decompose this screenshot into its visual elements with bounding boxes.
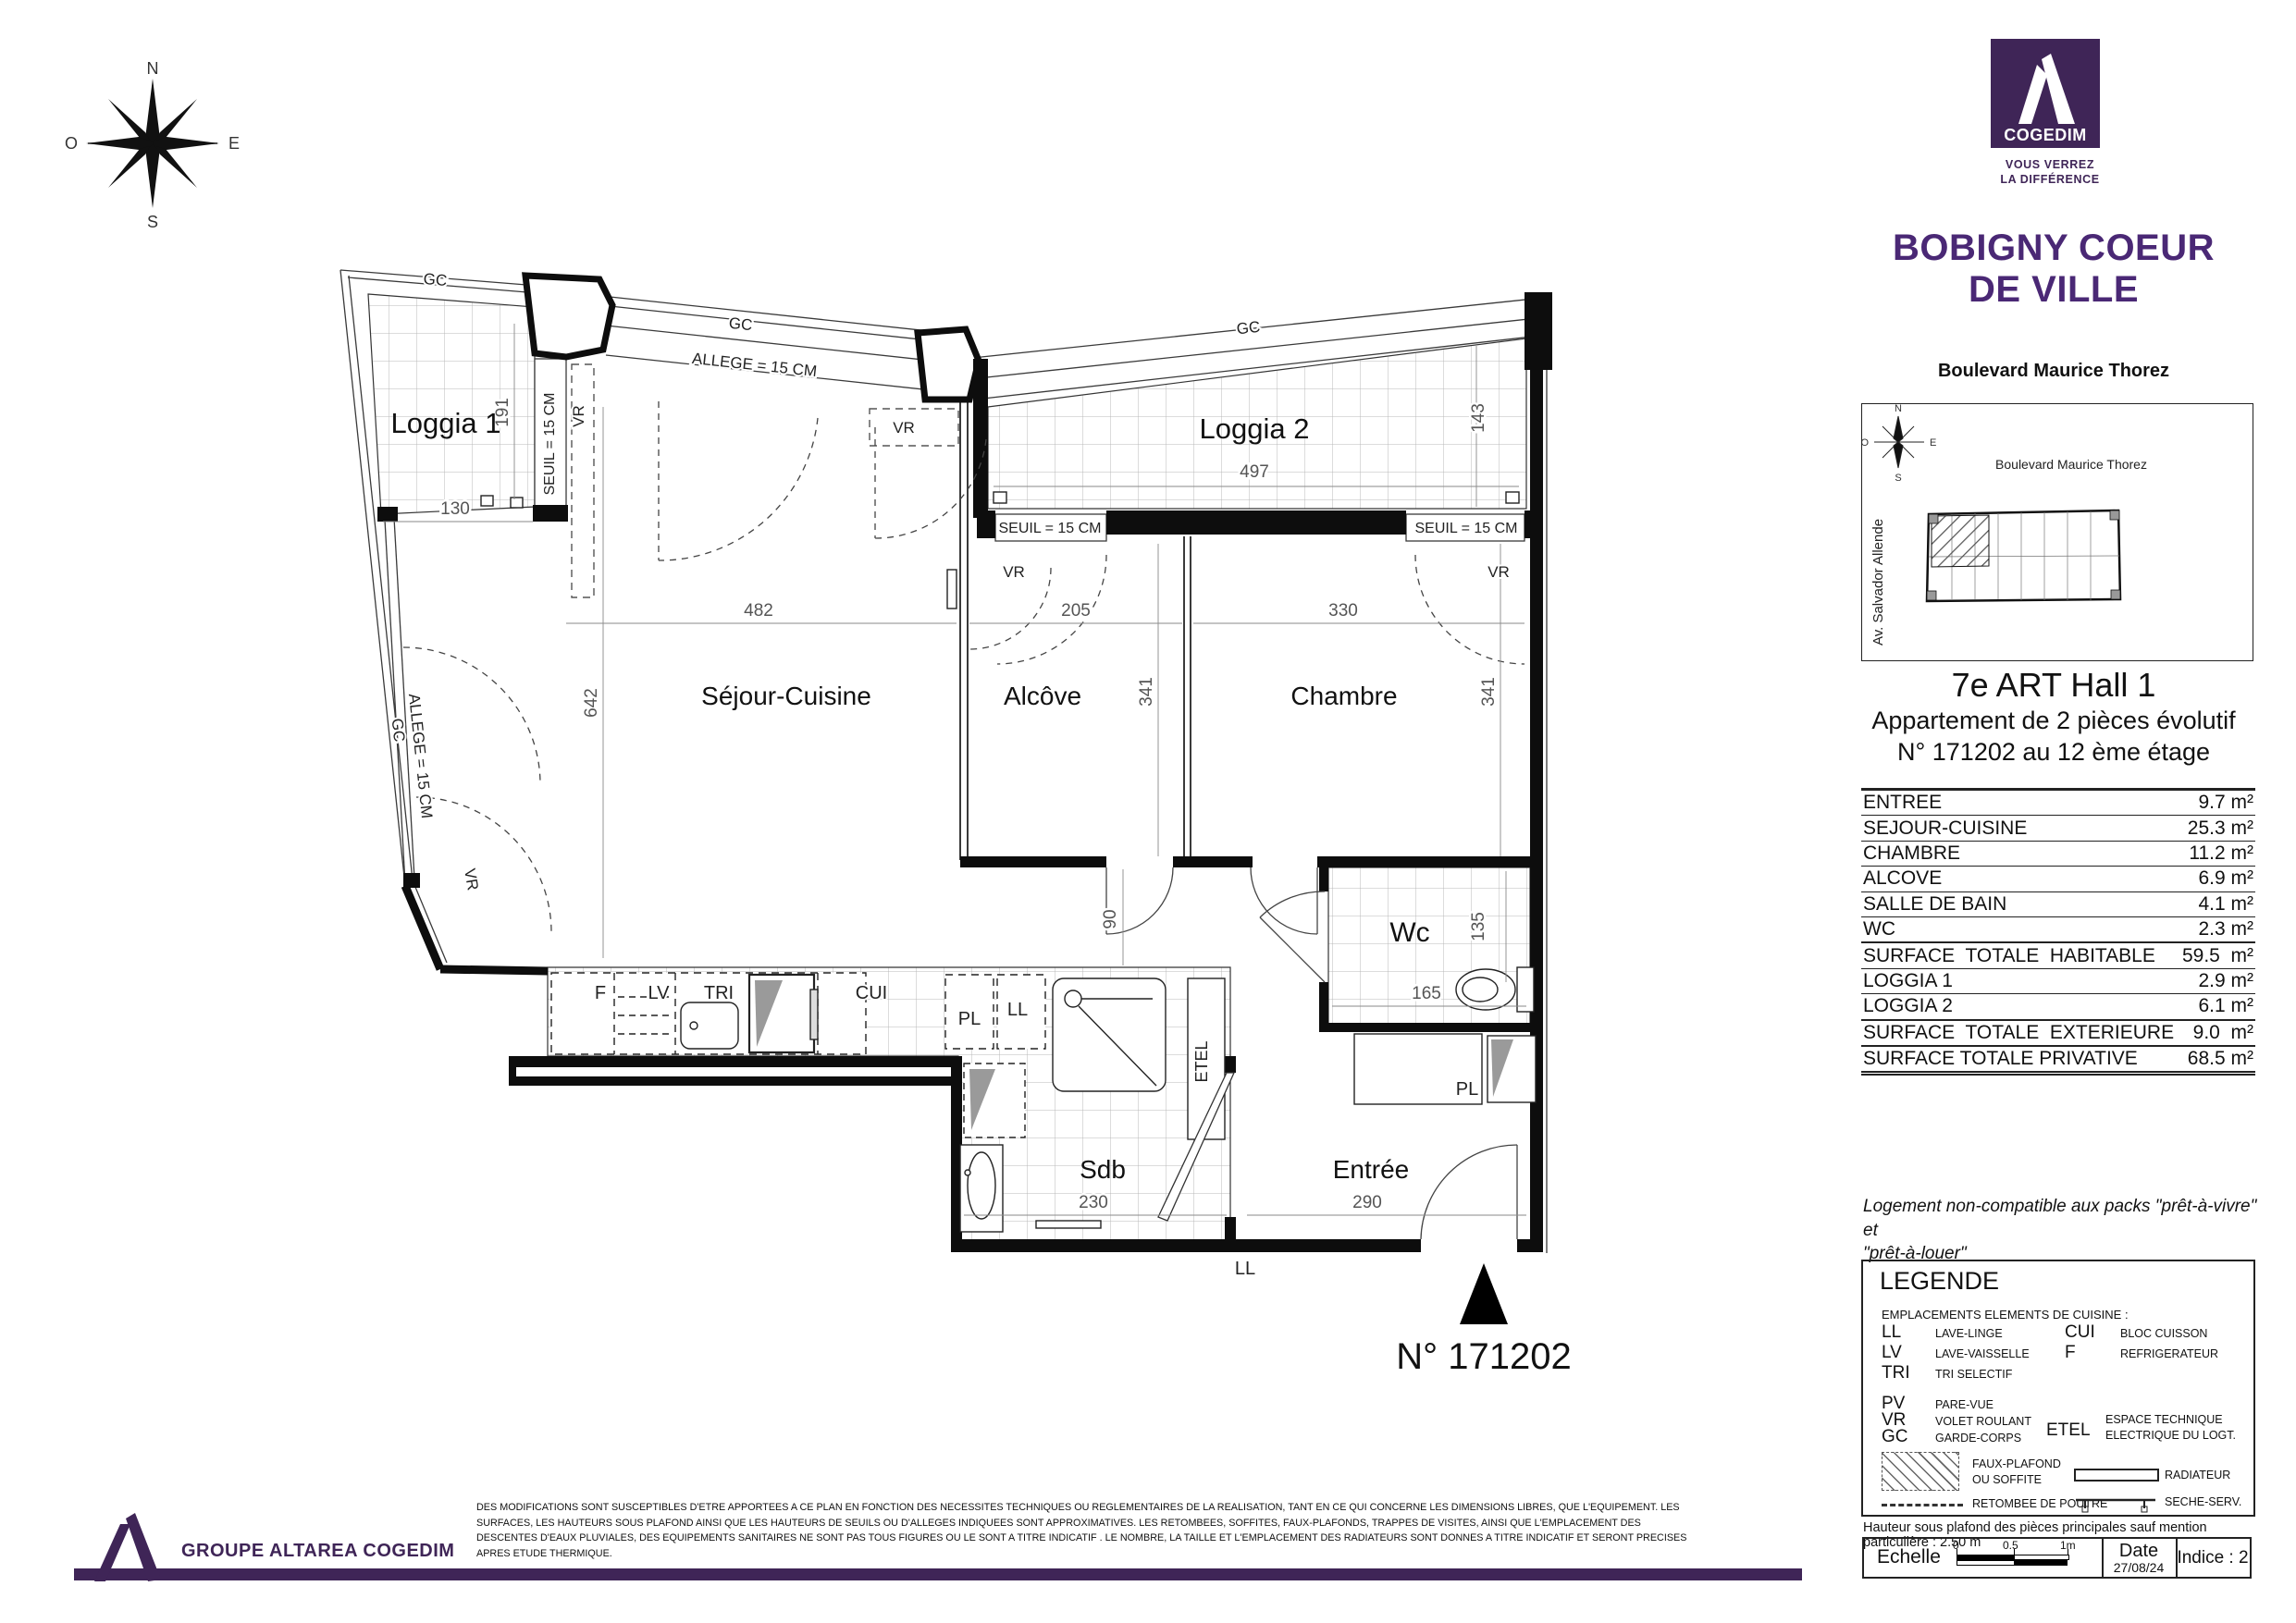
legend-abbr-tri: TRI: [1882, 1363, 1910, 1383]
table-row: ENTREE9.7 m²: [1861, 791, 2255, 816]
legend-label-faux2: OU SOFFITE: [1972, 1473, 2042, 1486]
legend-abbr-gc: GC: [1882, 1427, 1908, 1447]
room-loggia2: Loggia 2: [1200, 412, 1310, 445]
ll-label: LL: [1235, 1259, 1255, 1279]
row-value: 2.9 m²: [2198, 970, 2253, 992]
room-wc: Wc: [1389, 917, 1429, 948]
project-address: Boulevard Maurice Thorez: [1854, 361, 2253, 382]
seche-serviette-icon: [2074, 1494, 2157, 1518]
row-label: LOGGIA 2: [1863, 995, 1953, 1017]
compass-e: E: [228, 134, 240, 153]
date-label: Date: [2102, 1541, 2176, 1562]
kitchen-tri-label: TRI: [704, 983, 734, 1003]
legend-abbr-etel: ETEL: [2046, 1420, 2091, 1441]
seuil-label: SEUIL = 15 CM: [1414, 521, 1517, 536]
unit-location: N° 171202 au 12 ème étage: [1854, 738, 2253, 767]
radiateur-swatch-icon: [2074, 1469, 2159, 1482]
gc-label: GC: [728, 314, 753, 335]
project-title-line2: DE VILLE: [1854, 269, 2253, 311]
compatibility-notice: Logement non-compatible aux packs "prêt-…: [1863, 1195, 2261, 1266]
room-entree: Entrée: [1333, 1155, 1410, 1184]
table-row-total: SURFACE TOTALE PRIVATIVE68.5 m²: [1861, 1046, 2255, 1076]
row-label: SURFACE TOTALE HABITABLE: [1863, 945, 2155, 967]
title-block: Echelle 0 0.5 1m Date 27/08/24 Indice : …: [1862, 1537, 2252, 1579]
dim-wc-h: 135: [1469, 912, 1488, 941]
pl-label: PL: [1456, 1079, 1478, 1100]
legend-abbr-lv: LV: [1882, 1343, 1902, 1363]
altarea-logo-icon: [85, 1511, 178, 1588]
table-row-total: SURFACE TOTALE EXTERIEURE9.0 m²: [1861, 1020, 2255, 1046]
row-label: SEJOUR-CUISINE: [1863, 818, 2027, 840]
table-row: ALCOVE6.9 m²: [1861, 867, 2255, 891]
legend-title: LEGENDE: [1880, 1267, 1999, 1296]
vr-label: VR: [1487, 563, 1510, 581]
ll-label: LL: [1007, 1000, 1028, 1020]
dim-sdb-w: 230: [1079, 1193, 1108, 1212]
table-row: WC2.3 m²: [1861, 917, 2255, 942]
entrance-arrow-icon: [1460, 1263, 1508, 1324]
compass-s: S: [147, 213, 158, 231]
indice-value: Indice : 2: [2176, 1548, 2250, 1568]
legend-label-gc: GARDE-CORPS: [1935, 1432, 2021, 1445]
vr-label: VR: [570, 405, 587, 427]
legend-label-faux1: FAUX-PLAFOND: [1972, 1457, 2061, 1470]
retombee-swatch-icon: [1882, 1504, 1963, 1506]
row-value: 6.9 m²: [2198, 867, 2253, 890]
logo-tagline: VOUS VERREZ LA DIFFÉRENCE: [1976, 157, 2124, 188]
table-row: SALLE DE BAIN4.1 m²: [1861, 892, 2255, 917]
etel-label: ETEL: [1192, 1040, 1211, 1082]
row-value: 2.3 m²: [2198, 918, 2253, 941]
legend-label-tri: TRI SELECTIF: [1935, 1368, 2012, 1381]
vr-label: VR: [461, 867, 482, 892]
room-loggia1: Loggia 1: [391, 407, 501, 439]
legend-label-etel1: ESPACE TECHNIQUE: [2105, 1413, 2223, 1426]
entrance-marker: N° 171202: [1396, 1263, 1571, 1377]
logo-wordmark: COGEDIM: [2004, 126, 2087, 144]
legend-label-f: REFRIGERATEUR: [2120, 1347, 2218, 1360]
dim-alcove-w: 205: [1061, 601, 1091, 621]
compass-o: O: [65, 134, 78, 153]
vr-label: VR: [893, 419, 915, 436]
row-value: 6.1 m²: [2198, 995, 2253, 1017]
legend-abbr-f: F: [2065, 1343, 2076, 1363]
dim-loggia2-w: 497: [1240, 462, 1269, 482]
legend-kitchen-header: EMPLACEMENTS ELEMENTS DE CUISINE :: [1882, 1308, 2129, 1322]
legend-label-ll: LAVE-LINGE: [1935, 1327, 2003, 1340]
project-title: BOBIGNY COEUR DE VILLE: [1854, 227, 2253, 311]
row-value: 59.5 m²: [2182, 945, 2253, 967]
table-row: CHAMBRE11.2 m²: [1861, 842, 2255, 867]
legend-label-etel2: ELECTRIQUE DU LOGT.: [2105, 1429, 2236, 1442]
scale-bar: [2014, 1560, 2068, 1566]
room-chambre: Chambre: [1290, 682, 1397, 710]
kitchen-f-label: F: [595, 983, 606, 1003]
scale-label: Echelle: [1877, 1546, 1941, 1568]
unit-number: N° 171202: [1396, 1336, 1571, 1377]
table-row: LOGGIA 26.1 m²: [1861, 994, 2255, 1019]
cogedim-logo: COGEDIM: [1991, 39, 2102, 152]
row-value: 25.3 m²: [2188, 818, 2253, 840]
dim-wc-w: 165: [1412, 984, 1441, 1003]
row-label: WC: [1863, 918, 1895, 941]
legend-label-vr: VOLET ROULANT: [1935, 1415, 2031, 1428]
date-value: 27/08/24: [2102, 1560, 2176, 1575]
dim-passage: 90: [1101, 909, 1120, 928]
legend-abbr-ll: LL: [1882, 1322, 1901, 1343]
dim-entree-w: 290: [1352, 1193, 1382, 1212]
row-label: SALLE DE BAIN: [1863, 893, 2006, 916]
disclaimer-line: DESCENTES D'EAUX PLUVIALES, DES EQUIPEME…: [476, 1531, 1813, 1546]
seuil-label: SEUIL = 15 CM: [998, 521, 1101, 536]
project-title-line1: BOBIGNY COEUR: [1854, 227, 2253, 269]
table-row: SEJOUR-CUISINE25.3 m²: [1861, 816, 2255, 841]
footer-disclaimer: DES MODIFICATIONS SONT SUSCEPTIBLES D'ET…: [476, 1500, 1813, 1562]
legend-label-seche: SECHE-SERV.: [2165, 1495, 2241, 1508]
footer-company: GROUPE ALTAREA COGEDIM: [181, 1541, 454, 1562]
dim-loggia1-w: 130: [440, 499, 470, 519]
legend-box: LEGENDE EMPLACEMENTS ELEMENTS DE CUISINE…: [1861, 1260, 2255, 1517]
gc-label: GC: [423, 270, 448, 289]
room-sejour: Séjour-Cuisine: [701, 682, 871, 710]
vr-label: VR: [1003, 563, 1025, 581]
seuil-label: SEUIL = 15 CM: [542, 392, 558, 495]
room-alcove: Alcôve: [1004, 682, 1081, 710]
kitchen-cui-label: CUI: [856, 983, 887, 1003]
legend-label-pv: PARE-VUE: [1935, 1398, 1994, 1411]
scale-bar: [1957, 1560, 2016, 1566]
logo-tagline-line2: LA DIFFÉRENCE: [1976, 172, 2124, 187]
compass-rose-icon: N S E O: [65, 59, 240, 231]
notice-line1: Logement non-compatible aux packs "prêt-…: [1863, 1195, 2261, 1242]
unit-description: Appartement de 2 pièces évolutif: [1854, 707, 2253, 735]
row-label: LOGGIA 1: [1863, 970, 1953, 992]
dim-sejour-h: 642: [582, 688, 601, 718]
row-label: CHAMBRE: [1863, 842, 1960, 865]
dim-sejour-w: 482: [744, 601, 773, 621]
surfaces-table: ENTREE9.7 m² SEJOUR-CUISINE25.3 m² CHAMB…: [1861, 788, 2255, 1076]
row-label: SURFACE TOTALE EXTERIEURE: [1863, 1022, 2174, 1044]
legend-label-radiateur: RADIATEUR: [2165, 1469, 2230, 1482]
row-value: 4.1 m²: [2198, 893, 2253, 916]
dim-chambre-w: 330: [1328, 601, 1358, 621]
map-avenue-label: Av. Salvador Allende: [1870, 627, 2028, 646]
dim-chambre-h: 341: [1479, 677, 1499, 707]
gc-label: GC: [389, 718, 409, 743]
disclaimer-line: APRES ETUDE THERMIQUE.: [476, 1546, 1813, 1562]
footer-bar: [74, 1568, 1802, 1580]
table-row-total: SURFACE TOTALE HABITABLE59.5 m²: [1861, 942, 2255, 968]
allege-label: ALLEGE = 15 CM: [691, 350, 818, 380]
row-value: 11.2 m²: [2189, 842, 2253, 865]
row-value: 9.7 m²: [2198, 792, 2253, 814]
row-label: ALCOVE: [1863, 867, 1942, 890]
logo-tagline-line1: VOUS VERREZ: [1976, 157, 2124, 172]
site-map-box: [1861, 403, 2253, 661]
legend-abbr-cui: CUI: [2065, 1322, 2095, 1343]
map-street-label: Boulevard Maurice Thorez: [1965, 457, 2178, 472]
room-sdb: Sdb: [1080, 1155, 1126, 1184]
legend-label-lv: LAVE-VAISSELLE: [1935, 1347, 2030, 1360]
disclaimer-line: DES MODIFICATIONS SONT SUSCEPTIBLES D'ET…: [476, 1500, 1813, 1516]
pl-label: PL: [958, 1009, 981, 1029]
disclaimer-line: SURFACES, LES HAUTEURS SOUS PLAFOND AINS…: [476, 1516, 1813, 1531]
row-label: SURFACE TOTALE PRIVATIVE: [1863, 1048, 2138, 1070]
legend-label-cui: BLOC CUISSON: [2120, 1327, 2207, 1340]
unit-hall: 7e ART Hall 1: [1854, 666, 2253, 705]
dim-alcove-h: 341: [1137, 677, 1156, 707]
row-label: ENTREE: [1863, 792, 1942, 814]
faux-plafond-swatch-icon: [1882, 1452, 1959, 1491]
gc-label: GC: [1236, 318, 1261, 338]
kitchen-lv-label: LV: [648, 983, 671, 1003]
row-value: 68.5 m²: [2188, 1048, 2253, 1070]
compass-n: N: [147, 59, 159, 78]
row-value: 9.0 m²: [2193, 1022, 2253, 1044]
dim-loggia2-h: 143: [1469, 403, 1488, 433]
scale-tick-05: 0.5: [2003, 1539, 2018, 1552]
table-row: LOGGIA 12.9 m²: [1861, 969, 2255, 994]
